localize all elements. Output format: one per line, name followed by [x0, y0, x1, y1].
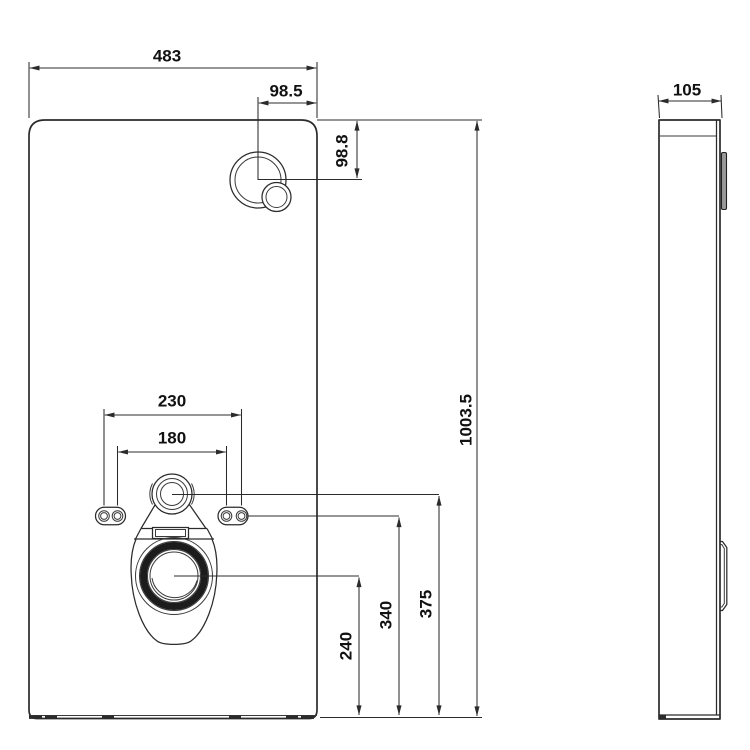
dim-label-button-offset-y: 98.8	[334, 134, 351, 167]
dim-label-bolt-spacing-inner: 180	[158, 430, 186, 447]
front-view	[29, 120, 317, 719]
side-connection-bump	[720, 542, 727, 611]
side-body-outline	[659, 120, 720, 719]
side-view	[659, 120, 727, 719]
dim-label-outlet-height: 240	[338, 632, 355, 660]
dim-label-height: 1003.5	[458, 394, 475, 446]
dim-label-inlet-height: 375	[418, 590, 435, 618]
mounting-bracket-right	[218, 507, 248, 525]
side-flush-plate-profile	[722, 153, 727, 210]
dim-label-depth: 105	[673, 82, 701, 99]
dim-label-bracket-height: 340	[378, 601, 395, 629]
side-foot	[660, 715, 667, 719]
technical-drawing-canvas: 483 98.5 98.8 230 180 240 340 375 1003.5…	[0, 0, 750, 750]
drawing-svg	[0, 0, 750, 750]
dim-label-button-offset-x: 98.5	[269, 83, 302, 100]
dim-label-bolt-spacing-outer: 230	[158, 393, 186, 410]
mounting-bracket-left	[96, 507, 126, 525]
dim-label-width: 483	[153, 48, 181, 65]
